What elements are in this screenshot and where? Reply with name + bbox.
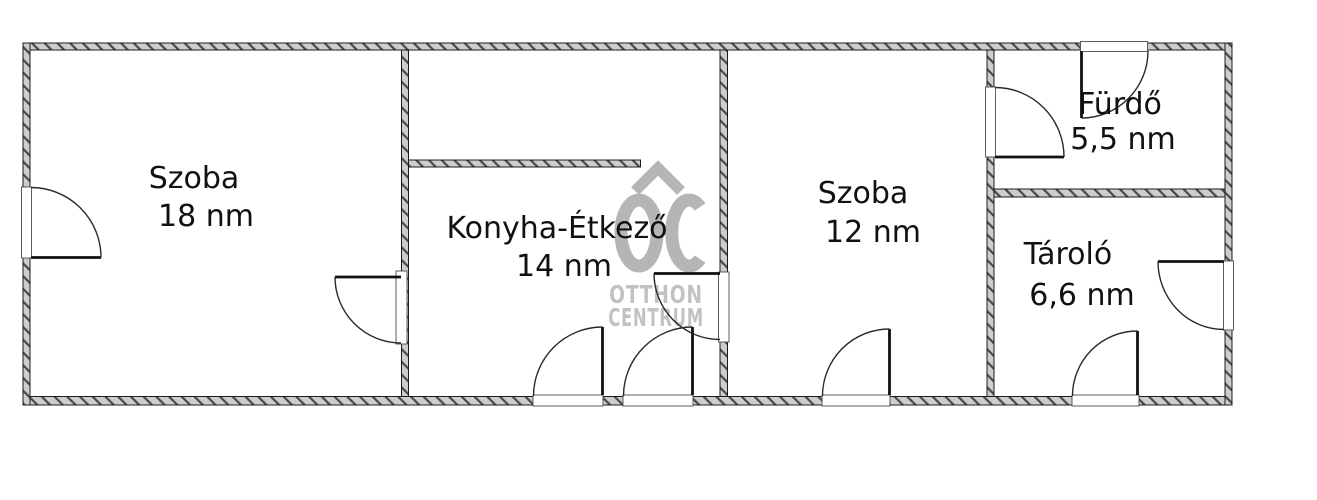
oc-monogram-c xyxy=(672,200,700,266)
floorplan-image: OTTHON CENTRUM xyxy=(0,0,1317,500)
room-label-konyha-name: Konyha-Étkező xyxy=(446,210,667,246)
opening-szoba18-konyha xyxy=(396,271,407,344)
roof-chevron-icon xyxy=(635,168,681,191)
floorplan-svg: OTTHON CENTRUM xyxy=(0,0,1317,500)
room-label-szoba12-name: Szoba xyxy=(818,176,909,211)
door-swing-szoba18-konyha xyxy=(335,277,401,343)
opening-szoba12-exterior xyxy=(822,395,890,406)
wall-szoba18-konyha xyxy=(402,50,409,397)
door-swing-szoba12-furdo xyxy=(995,88,1064,158)
room-label-szoba12-area: 12 nm xyxy=(825,215,921,250)
room-labels: Szoba 18 nm Konyha-Étkező 14 nm Szoba 12… xyxy=(149,87,1176,313)
door-swing-tarolo-exterior-right xyxy=(1158,262,1224,330)
room-label-szoba18-area: 18 nm xyxy=(158,199,254,234)
door-swing-tarolo-exterior-bottom xyxy=(1073,331,1138,396)
wall-furdo-tarolo xyxy=(994,189,1225,197)
door-swing-szoba18-exterior xyxy=(31,188,101,258)
opening-tarolo-exterior-right xyxy=(1224,261,1234,330)
opening-szoba18-exterior xyxy=(22,187,32,258)
door-swing-szoba12-exterior xyxy=(823,329,890,396)
wall-konyha-partial xyxy=(409,160,641,167)
door-swing-konyha-exterior-2 xyxy=(624,327,693,396)
door-swing-konyha-exterior-1 xyxy=(534,327,603,396)
room-label-szoba18-name: Szoba xyxy=(149,161,240,196)
room-label-tarolo-name: Tároló xyxy=(1023,237,1112,272)
exterior-wall-right xyxy=(1225,43,1232,405)
opening-konyha-exterior-1 xyxy=(533,395,603,406)
opening-furdo-exterior xyxy=(1081,42,1148,52)
wall-konyha-szoba12 xyxy=(720,50,728,397)
exterior-wall-top xyxy=(23,43,1232,50)
room-label-konyha-area: 14 nm xyxy=(516,249,612,284)
room-label-tarolo-area: 6,6 nm xyxy=(1029,278,1134,313)
opening-tarolo-exterior-bottom xyxy=(1072,395,1139,406)
opening-konyha-exterior-2 xyxy=(623,395,693,406)
opening-konyha-szoba12 xyxy=(719,272,730,342)
otthon-centrum-watermark: OTTHON CENTRUM xyxy=(608,168,704,332)
opening-szoba12-furdo xyxy=(986,87,996,157)
room-label-furdo-name: Fürdő xyxy=(1078,87,1162,122)
room-label-furdo-area: 5,5 nm xyxy=(1070,122,1175,157)
